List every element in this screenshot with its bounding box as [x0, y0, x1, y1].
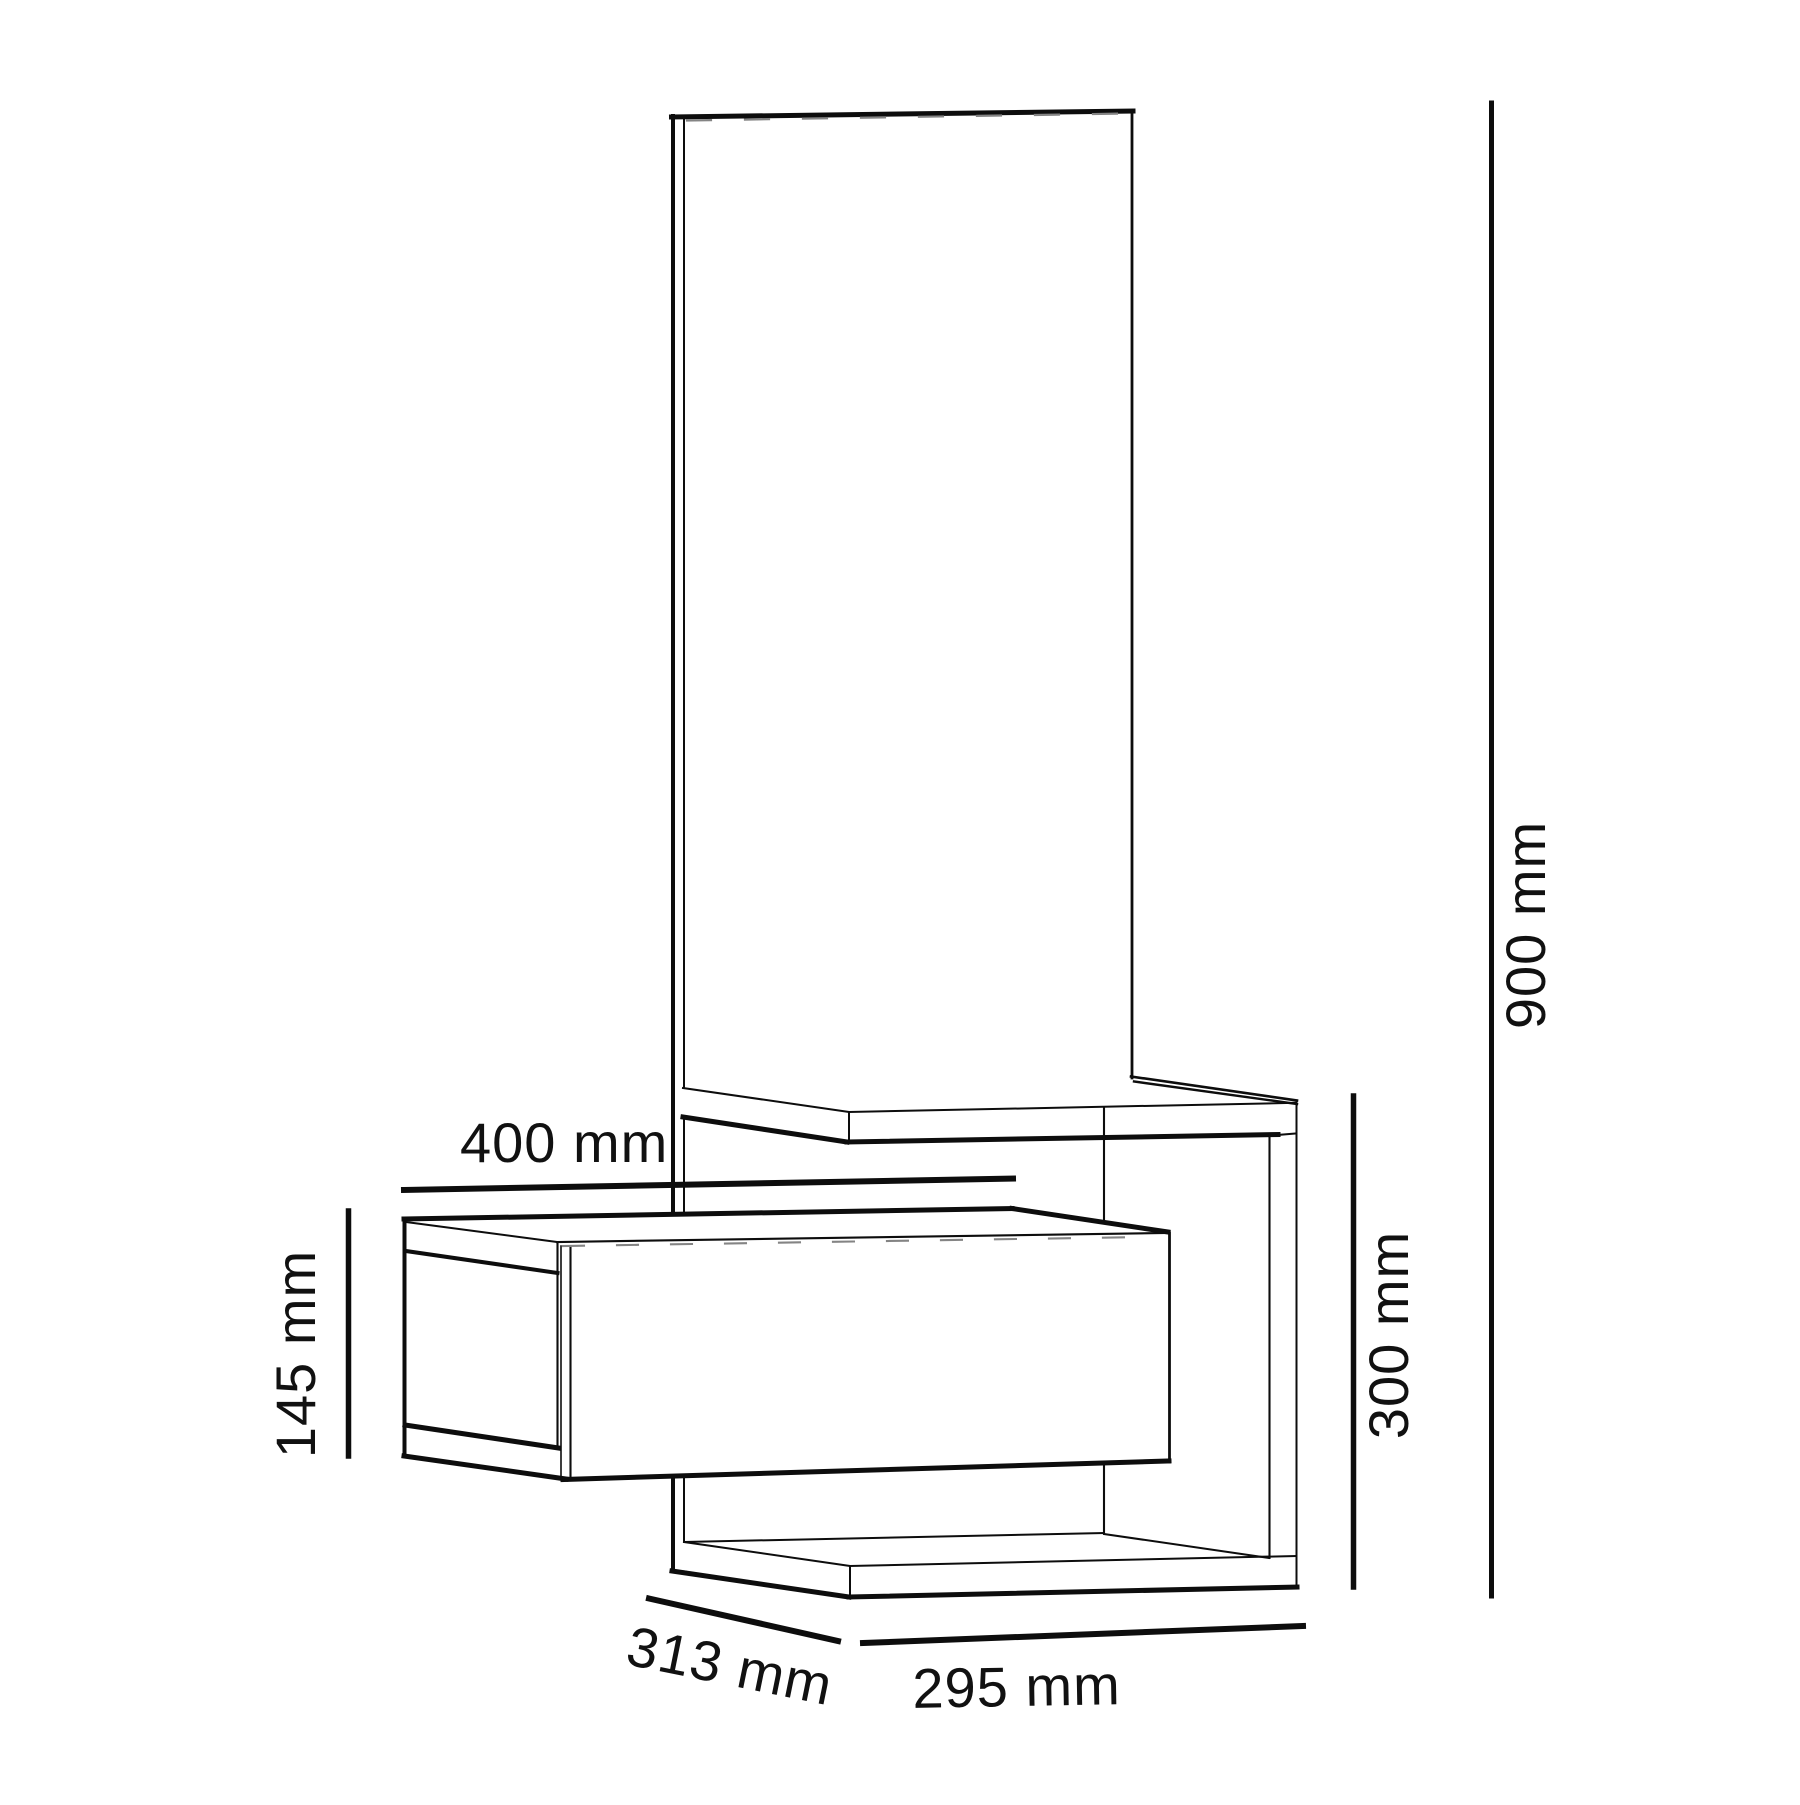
svg-text:295 mm: 295 mm: [912, 1653, 1121, 1720]
svg-text:400 mm: 400 mm: [460, 1111, 668, 1174]
svg-text:300 mm: 300 mm: [1357, 1231, 1420, 1439]
svg-text:900 mm: 900 mm: [1494, 821, 1557, 1029]
svg-text:145 mm: 145 mm: [264, 1250, 327, 1458]
